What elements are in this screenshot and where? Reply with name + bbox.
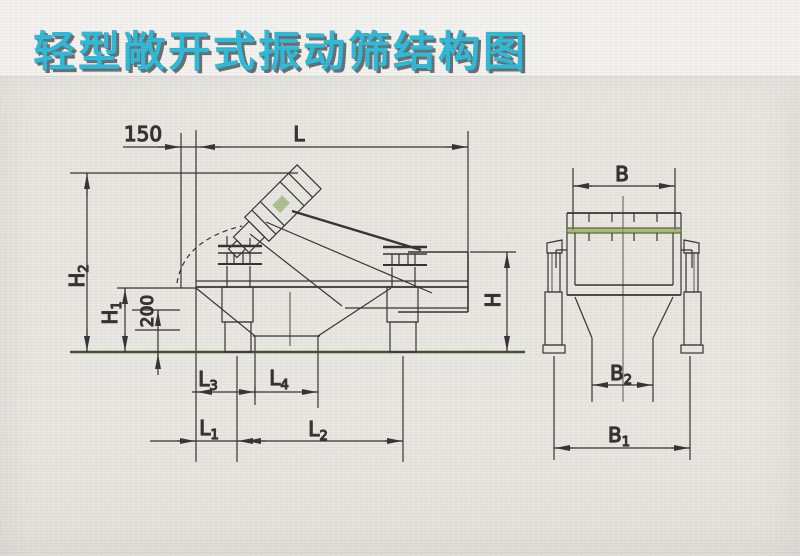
dim-label-H: H: [481, 292, 505, 307]
dim-label-150: 150: [124, 122, 162, 146]
technical-drawing: 150 L H2 H1 200 H L3 L4 L1 L2: [0, 0, 800, 555]
page-title: 轻型敞开式振动筛结构图: [33, 18, 528, 79]
front-extension-lines: [554, 168, 690, 460]
side-view: 150 L H2 H1 200 H L3 L4 L1 L2: [65, 122, 525, 462]
screen-mesh-band: [567, 228, 681, 233]
left-spring-support: [218, 236, 262, 352]
dim-label-L: L: [293, 122, 305, 146]
screen-box-front: [556, 213, 692, 295]
right-spring-support: [383, 247, 427, 352]
screen-deck: [177, 211, 468, 312]
left-leg: [543, 240, 565, 353]
dim-label-200: 200: [138, 295, 158, 327]
dim-label-L3: L3: [198, 367, 217, 394]
dim-label-H1: H1: [98, 301, 125, 324]
front-view: B B2 B1: [543, 162, 703, 460]
dim-label-B2: B2: [610, 361, 632, 388]
frame-beams: [196, 281, 468, 287]
side-extension-lines: [70, 130, 516, 462]
motor-label-smudge: [272, 195, 290, 213]
dim-label-L2: L2: [308, 417, 327, 444]
dim-label-H2: H2: [65, 264, 92, 287]
dim-label-L4: L4: [269, 366, 288, 393]
dim-label-B1: B1: [608, 423, 630, 450]
dim-label-L1: L1: [199, 416, 218, 443]
dim-label-B: B: [615, 162, 629, 186]
